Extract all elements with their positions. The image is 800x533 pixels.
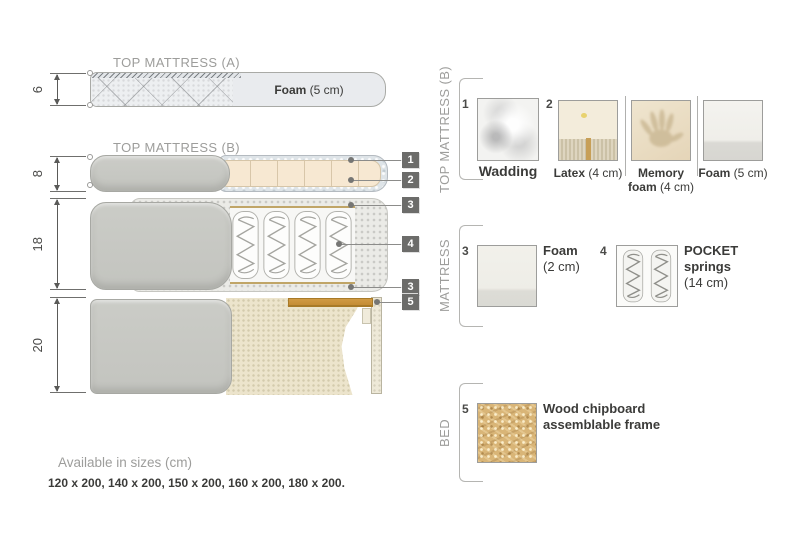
foam5-caption-rest: (5 cm): [730, 166, 767, 180]
frame-post: [371, 297, 382, 394]
pocket-spring-icon: [231, 210, 260, 280]
top-mattress-a-drawing: Foam (5 cm): [90, 72, 386, 107]
zipper-dot: [87, 102, 93, 108]
legend-item-2-number: 2: [546, 97, 553, 111]
foam-5cm-swatch: [703, 100, 763, 161]
callout-line-3: [352, 205, 402, 206]
top-mattress-b-title: TOP MATTRESS (B): [113, 140, 240, 155]
foam2-caption-bold: Foam: [543, 243, 578, 258]
memory-caption-line2-bold: foam: [628, 180, 657, 194]
dimension-arrow-20: [50, 297, 86, 393]
pocket-spring-icon: [648, 249, 674, 303]
springs-caption-size: (14 cm): [684, 275, 728, 290]
foam-layer-label: Foam (5 cm): [233, 73, 385, 106]
callout-dot-4: [336, 241, 342, 247]
mattress-construction-diagram: TOP MATTRESS (A) Foam (5 cm) 6 TOP MATTR…: [0, 0, 800, 533]
bed-cover: [90, 299, 232, 394]
legend-item-5-number: 5: [462, 402, 469, 416]
wadding-swatch: [477, 98, 539, 161]
legend-section-mattress: MATTRESS: [433, 225, 455, 327]
memory-foam-swatch: [631, 100, 691, 161]
wood-plank: [288, 298, 373, 307]
callout-line-2: [352, 180, 402, 181]
legend-divider: [697, 96, 698, 176]
dimension-value-6: 6: [28, 73, 46, 106]
dimension-value-18: 18: [28, 198, 46, 290]
springs-caption-line2: springs: [684, 259, 731, 274]
callout-line-5: [378, 302, 402, 303]
top-mattress-b-drawing: [90, 155, 388, 192]
callout-badge-5: 5: [402, 294, 419, 310]
callout-line-3b: [352, 287, 402, 288]
pocket-spring-icon: [293, 210, 322, 280]
pocket-spring-icon: [262, 210, 291, 280]
frame-joint: [362, 308, 371, 324]
callout-badge-2: 2: [402, 172, 419, 188]
legend-section-top-mattress-b: TOP MATTRESS (B): [433, 58, 455, 202]
available-sizes-title: Available in sizes (cm): [58, 455, 192, 470]
latex-memory-foam-blocks: [223, 160, 381, 187]
bed-fabric-drape: [226, 298, 362, 395]
dimension-arrow-8: [50, 156, 86, 192]
legend-section-bed: BED: [433, 383, 455, 482]
top-mattress-a-title: TOP MATTRESS (A): [113, 55, 240, 70]
pocket-springs-caption: POCKET springs (14 cm): [684, 243, 764, 291]
zipper-dot: [87, 70, 93, 76]
foam2-caption-size: (2 cm): [543, 259, 580, 274]
foam-5cm-caption: Foam (5 cm): [688, 166, 778, 180]
callout-badge-1: 1: [402, 152, 419, 168]
frame-caption-line1: Wood chipboard: [543, 401, 645, 416]
callout-dot-3: [348, 202, 354, 208]
wood-chipboard-swatch: [477, 403, 537, 463]
foam-2cm-swatch: [477, 245, 537, 307]
legend-item-4-number: 4: [600, 244, 607, 258]
zipper-dot: [87, 154, 93, 160]
callout-line-1: [352, 160, 402, 161]
pocket-springs-swatch: [616, 245, 678, 307]
callout-dot-3b: [348, 284, 354, 290]
fabric-cover: [90, 155, 230, 192]
memory-caption-line1: Memory: [638, 166, 684, 180]
latex-notch: [586, 138, 591, 160]
dimension-arrow-18: [50, 198, 86, 290]
wood-chipboard-caption: Wood chipboard assemblable frame: [543, 401, 683, 433]
callout-badge-3: 3: [402, 197, 419, 213]
foam-a-bold: Foam: [274, 83, 306, 97]
dimension-arrow-6: [50, 73, 86, 106]
pocket-spring-icon: [620, 249, 646, 303]
latex-swatch: [558, 100, 618, 161]
dimension-value-8: 8: [28, 156, 46, 192]
callout-line-4: [340, 244, 402, 245]
callout-dot-1: [348, 157, 354, 163]
quilted-cover-section: [91, 73, 233, 107]
zipper-dot: [87, 182, 93, 188]
legend-divider: [625, 96, 626, 176]
legend-item-3-number: 3: [462, 244, 469, 258]
wadding-caption: Wadding: [468, 164, 548, 178]
callout-dot-5: [374, 299, 380, 305]
memory-caption-line2-rest: (4 cm): [657, 180, 694, 194]
callout-dot-2: [348, 177, 354, 183]
mattress-cover: [90, 202, 232, 290]
quilt-edge-hatch: [91, 73, 241, 78]
hand-imprint-icon: [632, 101, 690, 160]
callout-badge-4: 4: [402, 236, 419, 252]
callout-badge-3b: 3: [402, 279, 419, 295]
legend-item-1-number: 1: [462, 97, 469, 111]
available-sizes-list: 120 x 200, 140 x 200, 150 x 200, 160 x 2…: [48, 476, 345, 490]
frame-caption-line2: assemblable frame: [543, 417, 660, 432]
springs-caption-line1: POCKET: [684, 243, 738, 258]
dimension-value-20: 20: [28, 297, 46, 393]
foam5-caption-bold: Foam: [698, 166, 730, 180]
foam-a-rest: (5 cm): [306, 83, 343, 97]
latex-fleck: [581, 113, 587, 118]
latex-caption-bold: Latex: [554, 166, 585, 180]
